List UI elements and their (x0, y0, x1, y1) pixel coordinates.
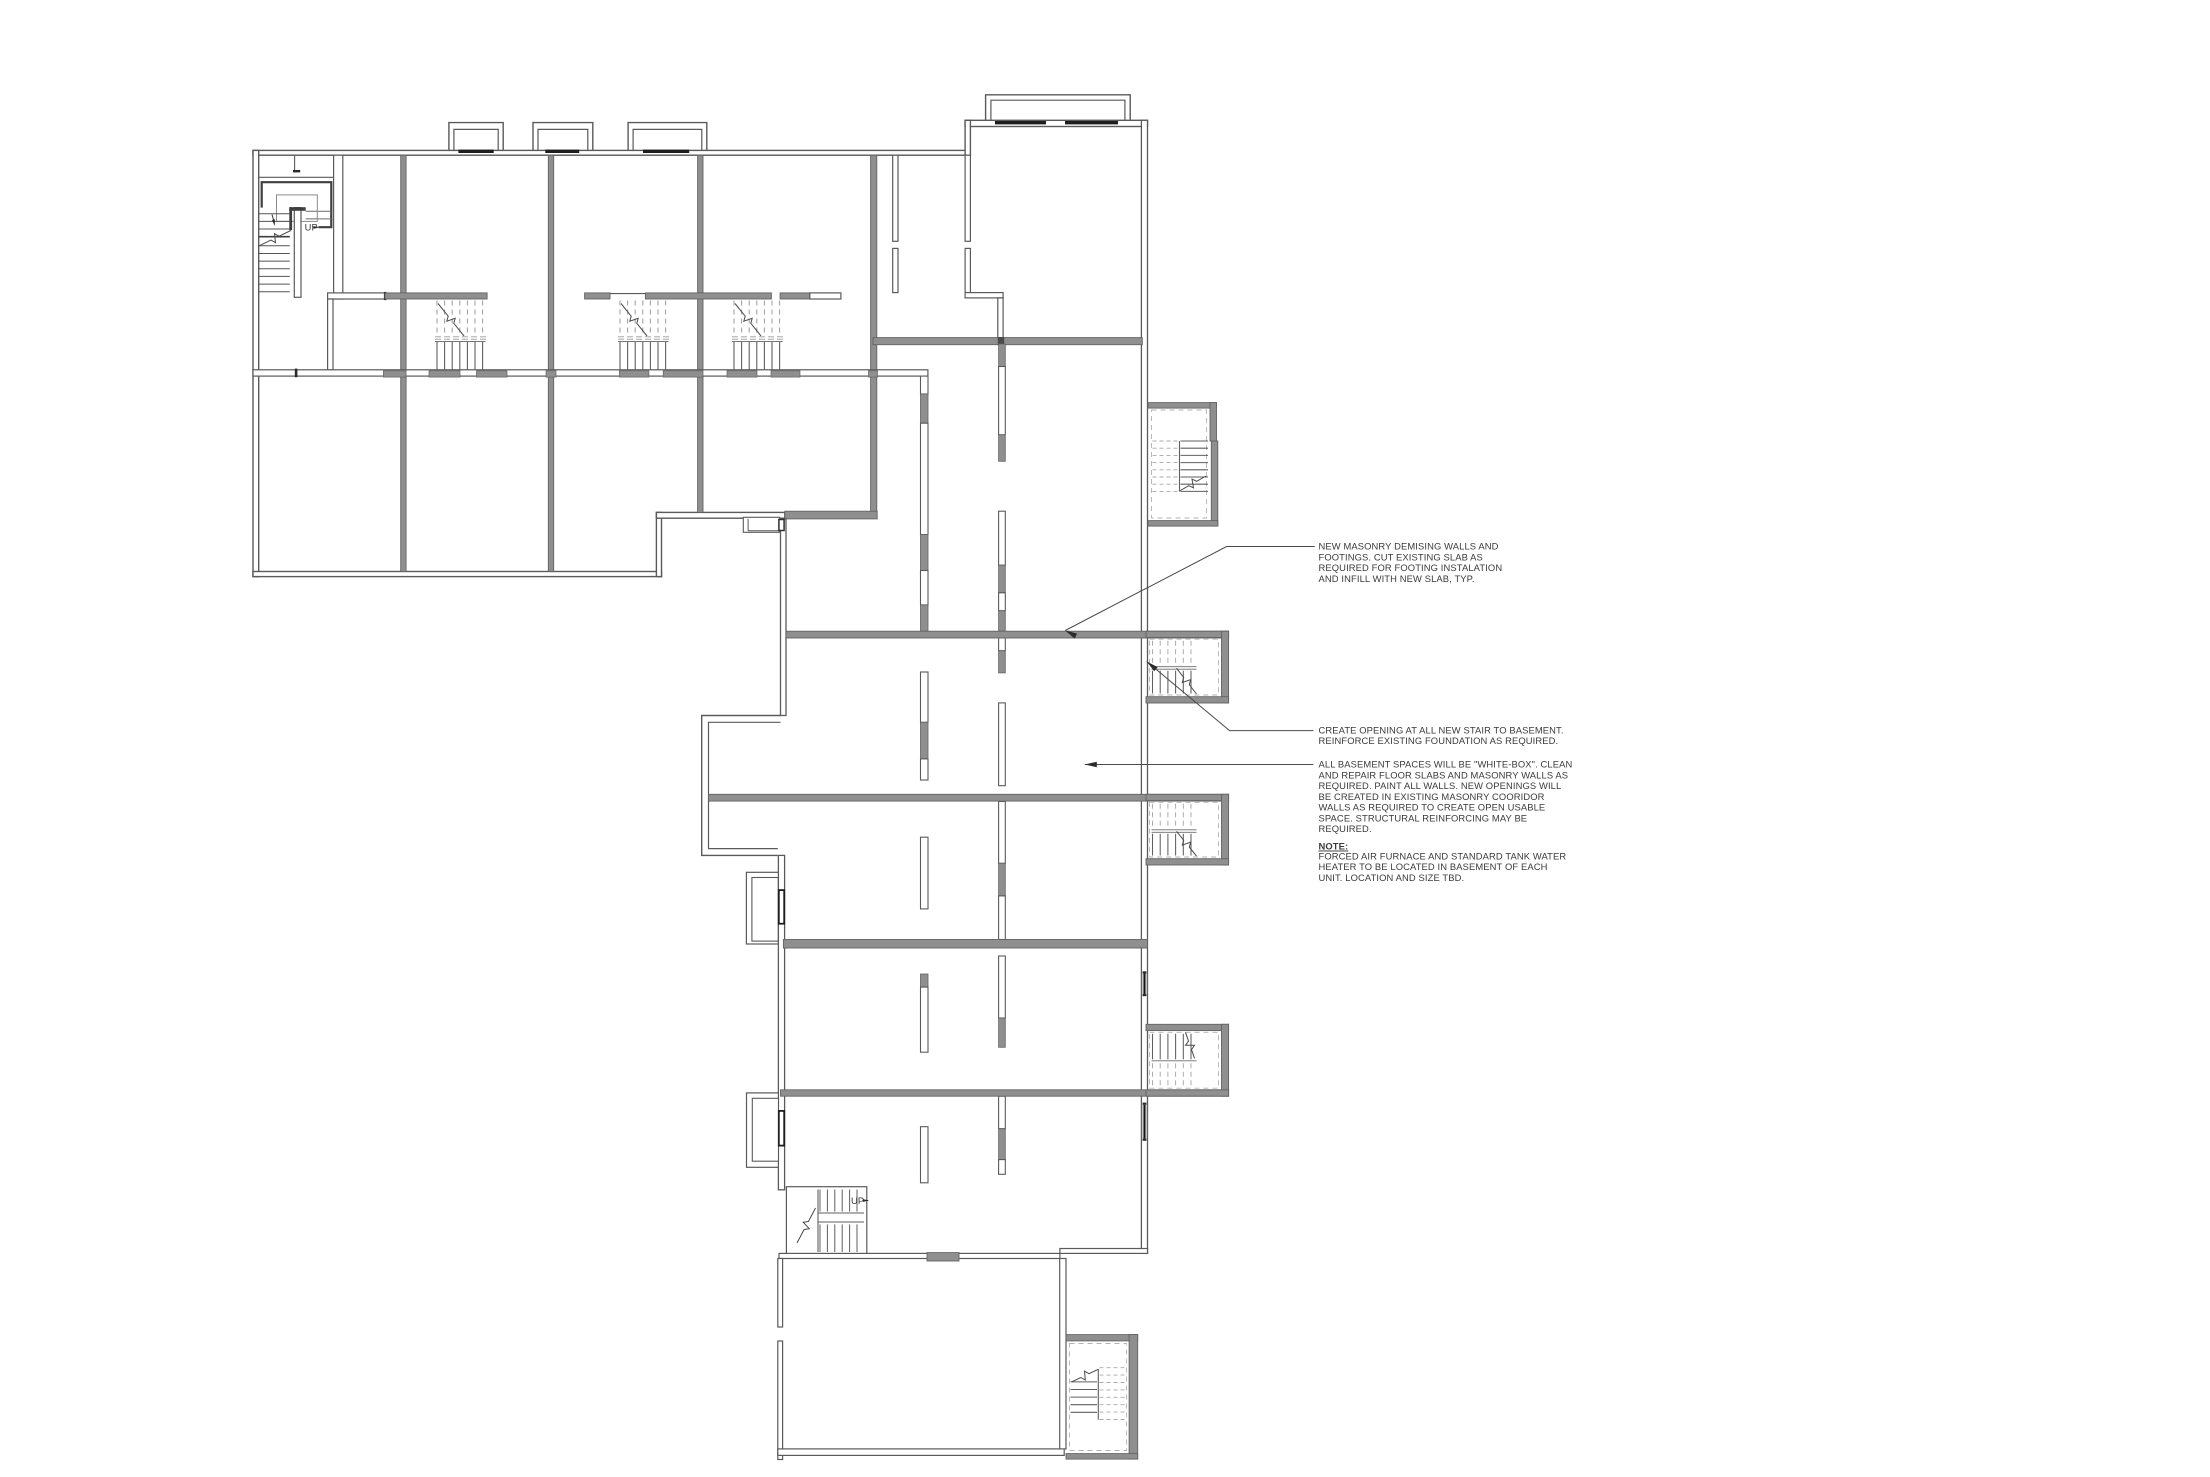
svg-text:FORCED AIR FURNACE AND STANDAR: FORCED AIR FURNACE AND STANDARD TANK WAT… (1319, 850, 1567, 861)
svg-text:REINFORCE EXISTING FOUNDATION: REINFORCE EXISTING FOUNDATION AS REQUIRE… (1319, 735, 1559, 746)
svg-text:CREATE OPENING AT ALL NEW STAI: CREATE OPENING AT ALL NEW STAIR TO BASEM… (1319, 724, 1564, 735)
svg-text:UNIT. LOCATION AND SIZE TBD.: UNIT. LOCATION AND SIZE TBD. (1319, 872, 1465, 883)
svg-text:REQUIRED FOR FOOTING INSTALATI: REQUIRED FOR FOOTING INSTALATION (1319, 562, 1503, 573)
svg-text:SPACE. STRUCTURAL REINFORCING: SPACE. STRUCTURAL REINFORCING MAY BE (1319, 812, 1528, 823)
svg-text:REQUIRED. PAINT ALL WALLS. NEW: REQUIRED. PAINT ALL WALLS. NEW OPENINGS … (1319, 780, 1562, 791)
svg-text:ALL BASEMENT SPACES WILL BE "W: ALL BASEMENT SPACES WILL BE "WHITE-BOX".… (1319, 759, 1573, 770)
svg-text:NEW MASONRY DEMISING WALLS AND: NEW MASONRY DEMISING WALLS AND (1319, 541, 1499, 552)
svg-text:FOOTINGS. CUT EXISTING SLAB AS: FOOTINGS. CUT EXISTING SLAB AS (1319, 552, 1483, 563)
svg-text:HEATER TO BE LOCATED IN BASEME: HEATER TO BE LOCATED IN BASEMENT OF EACH (1319, 861, 1548, 872)
svg-text:BE CREATED IN EXISTING MASONRY: BE CREATED IN EXISTING MASONRY COORIDOR (1319, 791, 1545, 802)
svg-text:REQUIRED.: REQUIRED. (1319, 823, 1372, 834)
svg-text:UP: UP (851, 1195, 864, 1206)
svg-text:AND REPAIR FLOOR SLABS AND MAS: AND REPAIR FLOOR SLABS AND MASONRY WALLS… (1319, 769, 1569, 780)
svg-text:AND INFILL WITH NEW SLAB, TYP.: AND INFILL WITH NEW SLAB, TYP. (1319, 573, 1475, 584)
svg-text:WALLS AS REQUIRED TO CREATE OP: WALLS AS REQUIRED TO CREATE OPEN USABLE (1319, 802, 1546, 813)
